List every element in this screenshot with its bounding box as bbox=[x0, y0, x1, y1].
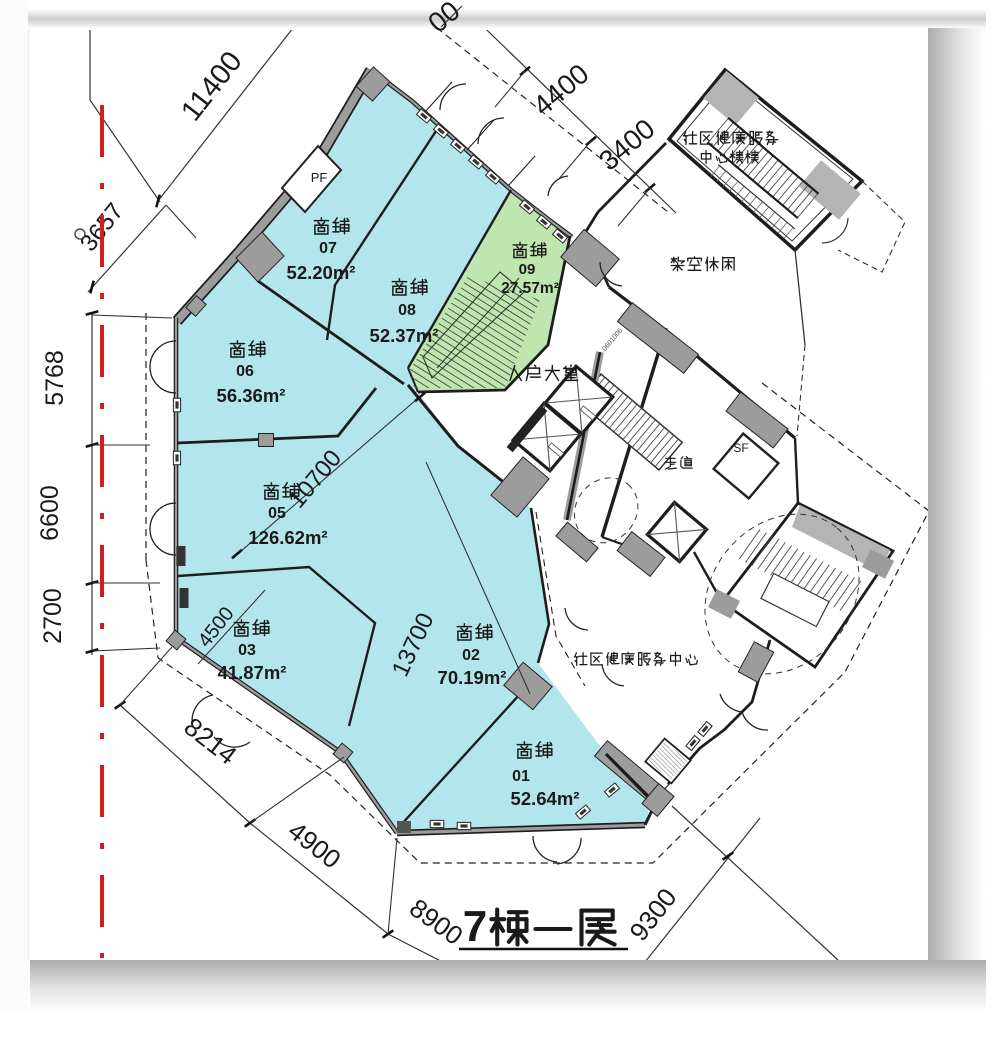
svg-text:27.57m²: 27.57m² bbox=[501, 280, 559, 297]
svg-text:52.37m²: 52.37m² bbox=[370, 325, 439, 346]
svg-text:126.62m²: 126.62m² bbox=[248, 527, 327, 548]
svg-text:7: 7 bbox=[463, 902, 487, 951]
svg-text:6600: 6600 bbox=[36, 485, 64, 541]
svg-text:05: 05 bbox=[268, 505, 286, 522]
svg-text:2700: 2700 bbox=[39, 588, 67, 644]
svg-text:70.19m²: 70.19m² bbox=[438, 667, 507, 688]
svg-text:07: 07 bbox=[319, 240, 337, 257]
svg-text:41.87m²: 41.87m² bbox=[218, 662, 287, 683]
svg-text:08: 08 bbox=[398, 302, 416, 319]
svg-text:03: 03 bbox=[238, 642, 256, 659]
svg-text:SF: SF bbox=[733, 441, 748, 455]
svg-text:PF: PF bbox=[311, 170, 328, 185]
svg-text:52.64m²: 52.64m² bbox=[511, 788, 580, 809]
svg-text:09: 09 bbox=[519, 261, 536, 278]
svg-text:5768: 5768 bbox=[41, 350, 69, 406]
svg-text:01: 01 bbox=[512, 768, 530, 785]
svg-text:02: 02 bbox=[462, 647, 480, 664]
svg-text:52.20m²: 52.20m² bbox=[287, 262, 356, 283]
svg-text:56.36m²: 56.36m² bbox=[217, 385, 286, 406]
svg-text:06: 06 bbox=[236, 363, 254, 380]
